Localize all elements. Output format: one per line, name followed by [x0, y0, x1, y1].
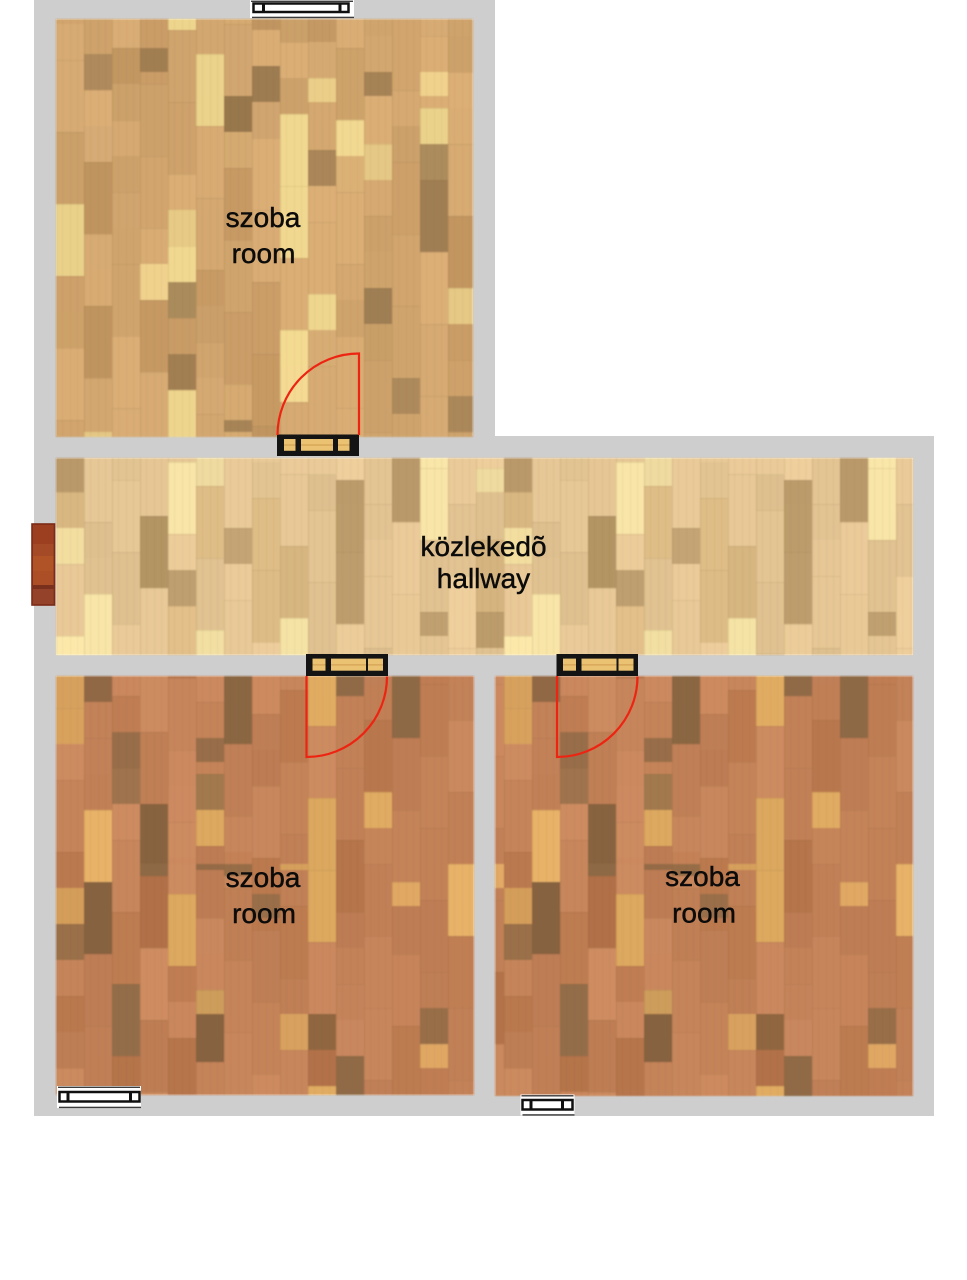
svg-text:room: room: [232, 898, 296, 929]
svg-text:room: room: [672, 898, 736, 929]
svg-text:szoba: szoba: [226, 202, 301, 233]
svg-text:room: room: [232, 238, 296, 269]
svg-text:szoba: szoba: [665, 861, 740, 892]
svg-text:hallway: hallway: [437, 563, 530, 594]
svg-text:szoba: szoba: [226, 862, 301, 893]
svg-text:közlekedõ: közlekedõ: [420, 531, 546, 562]
